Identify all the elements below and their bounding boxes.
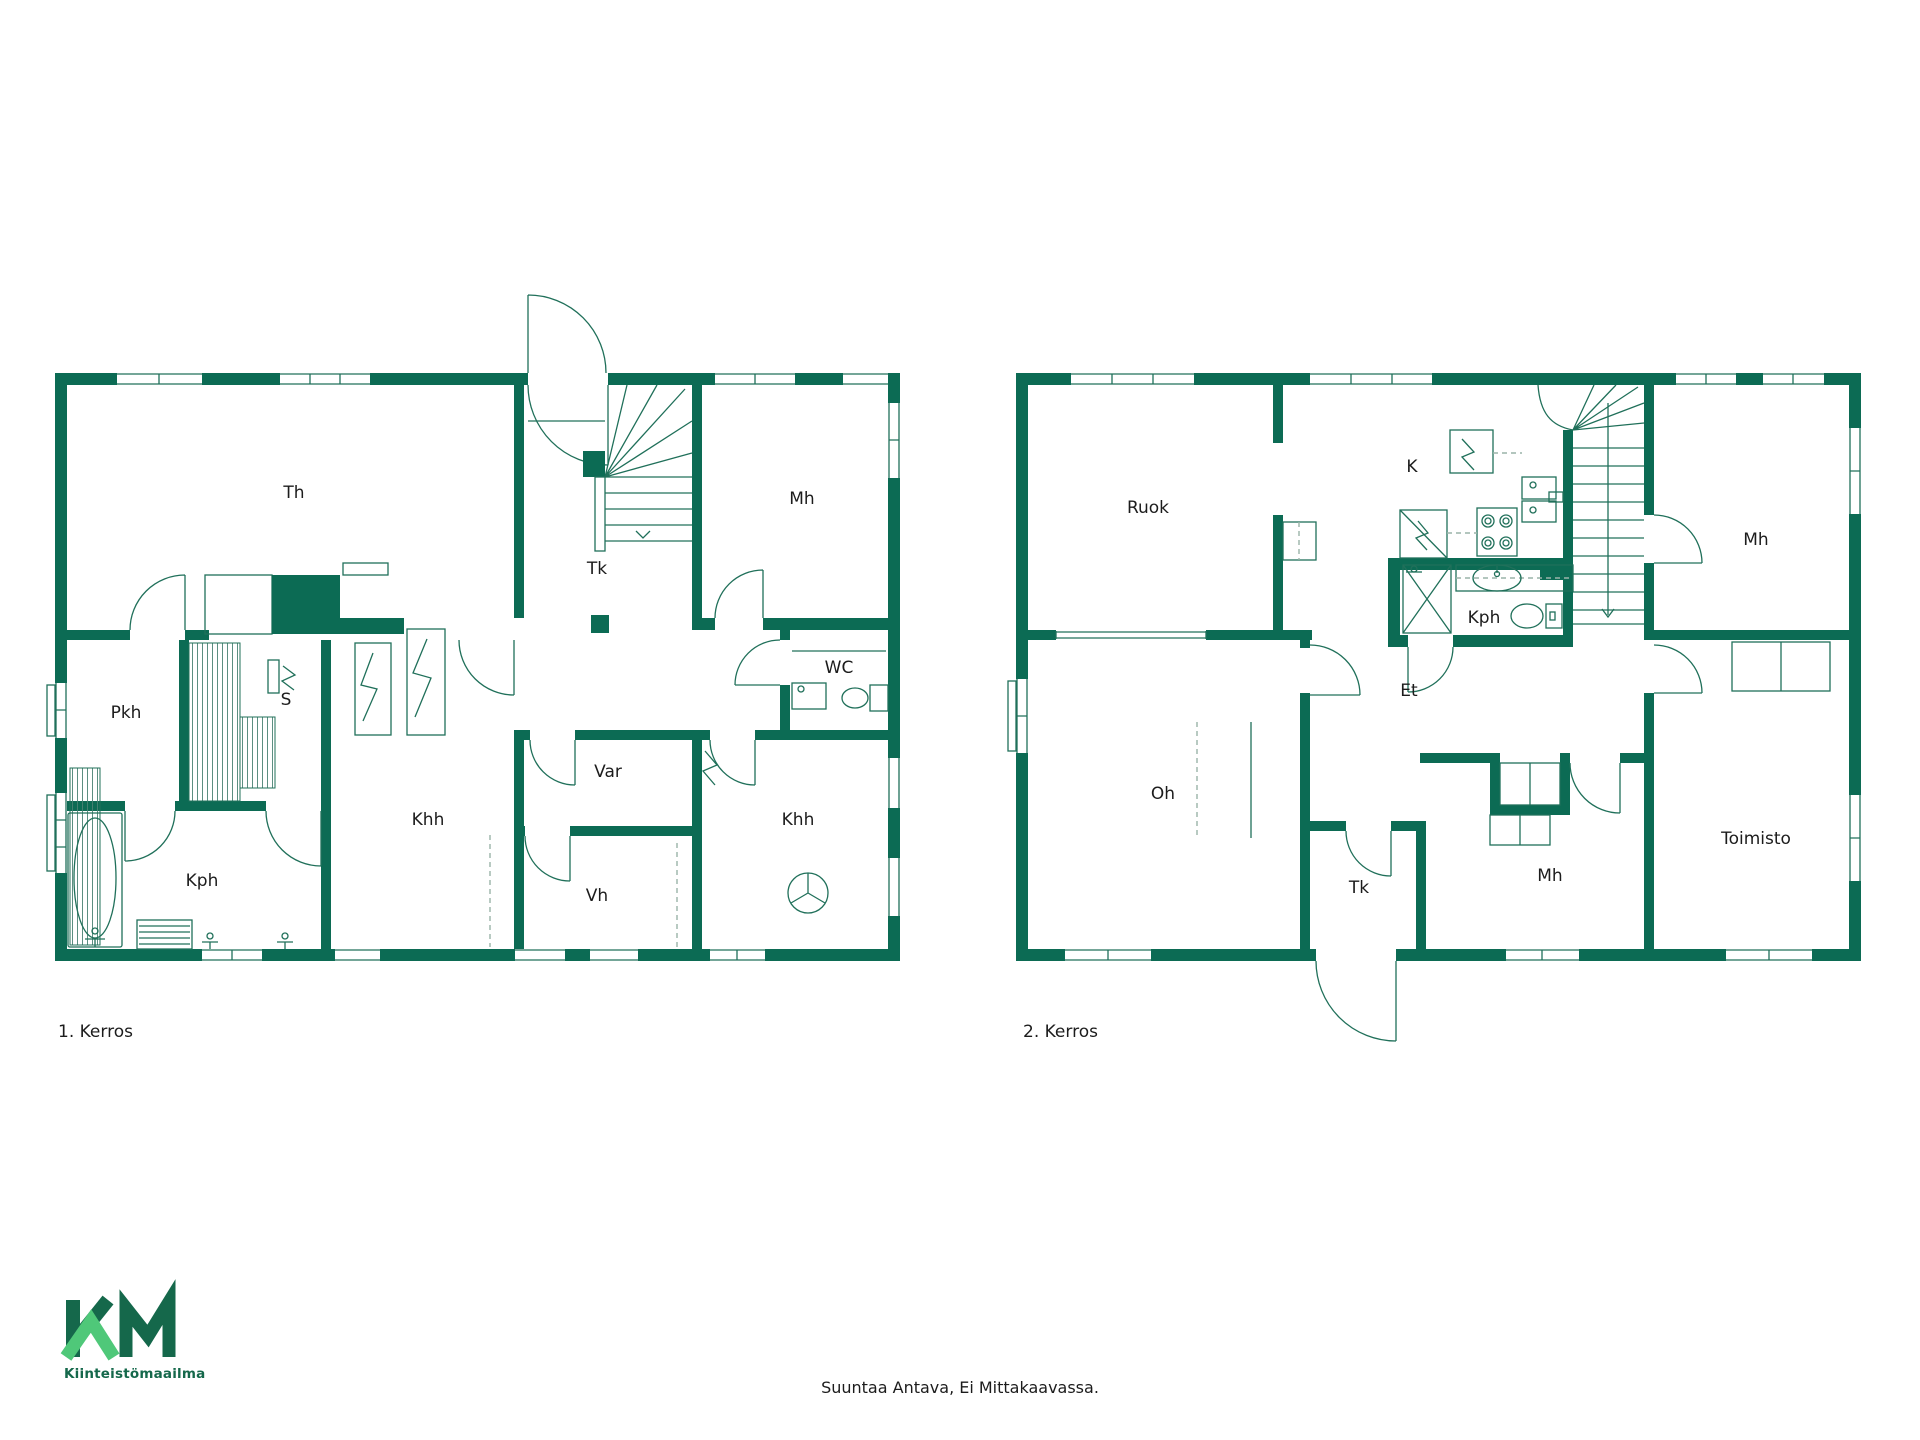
window xyxy=(117,373,202,385)
faucet-icon xyxy=(202,933,218,949)
window xyxy=(888,858,900,916)
door-toimisto xyxy=(1654,645,1702,693)
electrical-cabinet-icon xyxy=(355,643,391,735)
stairs-down-arrow xyxy=(636,531,650,538)
km-logo-icon xyxy=(64,1300,184,1360)
window xyxy=(1849,428,1861,514)
window xyxy=(590,949,638,961)
window xyxy=(1310,373,1432,385)
room-label-tk: Tk xyxy=(586,559,607,579)
window xyxy=(280,373,370,385)
window xyxy=(715,373,795,385)
room-label-k: K xyxy=(1406,457,1418,477)
window xyxy=(1726,949,1812,961)
chimney-block xyxy=(591,615,609,633)
room-label-mh-top: Mh xyxy=(1743,530,1768,550)
kitchen-cabinet-icon xyxy=(1450,430,1522,473)
room-label-wc: WC xyxy=(825,658,854,678)
electrical-cabinet-icon xyxy=(407,629,445,735)
room-label-vh: Vh xyxy=(586,886,608,906)
door-wc xyxy=(735,640,790,685)
window xyxy=(1008,679,1028,753)
f1-windows xyxy=(47,373,900,961)
window xyxy=(1763,373,1824,385)
room-label-mh: Mh xyxy=(789,489,814,509)
window xyxy=(47,683,67,738)
footer-note: Suuntaa Antava, Ei Mittakaavassa. xyxy=(0,1378,1920,1397)
door-khh-center xyxy=(459,640,514,695)
room-label-var: Var xyxy=(594,762,622,782)
washing-machine-icon xyxy=(137,920,192,949)
sauna-bench-icon xyxy=(189,643,275,801)
entrance-door xyxy=(528,295,608,465)
door-kph-left xyxy=(125,801,175,861)
wide-opening xyxy=(1056,631,1206,639)
water-heater-icon xyxy=(703,751,717,785)
fan-icon xyxy=(788,873,828,913)
f1-walls xyxy=(55,373,900,961)
window xyxy=(888,758,900,808)
f2-doors xyxy=(1310,515,1702,1041)
f2-windows xyxy=(1008,373,1861,961)
floorplan-floor1: Th Tk Mh WC Khh Var Vh Khh Pkh S Kph xyxy=(40,273,915,1063)
toilet-icon xyxy=(1511,604,1562,628)
f1-stairs-icon xyxy=(528,385,692,551)
door-oh xyxy=(1310,645,1360,695)
closet-icon xyxy=(1490,763,1560,845)
shower-icon xyxy=(1403,565,1451,633)
bench-icon xyxy=(70,768,100,945)
km-logo: Kiinteistömaailma xyxy=(64,1300,214,1382)
room-label-kph: Kph xyxy=(1468,608,1501,628)
floor2-caption: 2. Kerros xyxy=(1023,1022,1098,1042)
room-label-s: S xyxy=(281,690,292,710)
window xyxy=(1676,373,1736,385)
window xyxy=(888,403,900,478)
window xyxy=(843,373,888,385)
room-label-pkh: Pkh xyxy=(111,703,142,723)
floorplan-floor2: Ruok K Mh Kph Et Oh Tk Mh Toimisto xyxy=(1001,273,1876,1063)
window xyxy=(1065,949,1151,961)
faucet-icon xyxy=(277,933,293,949)
room-label-khh: Khh xyxy=(412,810,445,830)
room-label-ruok: Ruok xyxy=(1127,498,1169,518)
f2-room-labels: Ruok K Mh Kph Et Oh Tk Mh Toimisto xyxy=(1127,457,1791,898)
kitchen-sink-icon xyxy=(1522,477,1563,522)
window xyxy=(202,949,262,961)
sauna-heater-icon xyxy=(268,660,295,693)
room-label-toimisto: Toimisto xyxy=(1720,829,1791,849)
wardrobe-icon xyxy=(1197,722,1251,838)
window xyxy=(1071,373,1194,385)
stove-icon xyxy=(1477,508,1517,556)
room-label-et: Et xyxy=(1400,681,1418,701)
door-pkh xyxy=(130,575,185,640)
room-label-oh: Oh xyxy=(1151,784,1175,804)
door-mh-bottom xyxy=(1570,763,1620,813)
door-mh-top xyxy=(1654,515,1702,563)
logo-m xyxy=(126,1302,169,1357)
window xyxy=(710,949,765,961)
exterior-door xyxy=(1316,949,1396,1041)
window xyxy=(47,793,67,873)
room-label-mh: Mh xyxy=(1537,866,1562,886)
f2-stairs-icon xyxy=(1538,385,1644,624)
refrigerator-icon xyxy=(1400,510,1447,558)
room-label-kph: Kph xyxy=(186,871,219,891)
room-label-tk: Tk xyxy=(1348,878,1369,898)
room-label-th: Th xyxy=(282,483,304,503)
window xyxy=(515,949,565,961)
window xyxy=(1506,949,1579,961)
floor1-caption: 1. Kerros xyxy=(58,1022,133,1042)
door-mh xyxy=(715,570,763,630)
door-vh xyxy=(525,826,570,881)
f2-walls xyxy=(1016,373,1861,961)
sink-icon xyxy=(792,683,826,709)
door-var xyxy=(530,730,575,785)
door-tk xyxy=(1346,821,1391,876)
cabinet-icon xyxy=(1283,522,1316,560)
door-khh-right xyxy=(710,730,755,785)
window xyxy=(1849,795,1861,881)
window xyxy=(335,949,380,961)
toilet-icon xyxy=(842,688,868,708)
door-kph-sauna xyxy=(266,801,321,866)
closet-icon xyxy=(1732,642,1830,691)
room-label-khh-right: Khh xyxy=(782,810,815,830)
